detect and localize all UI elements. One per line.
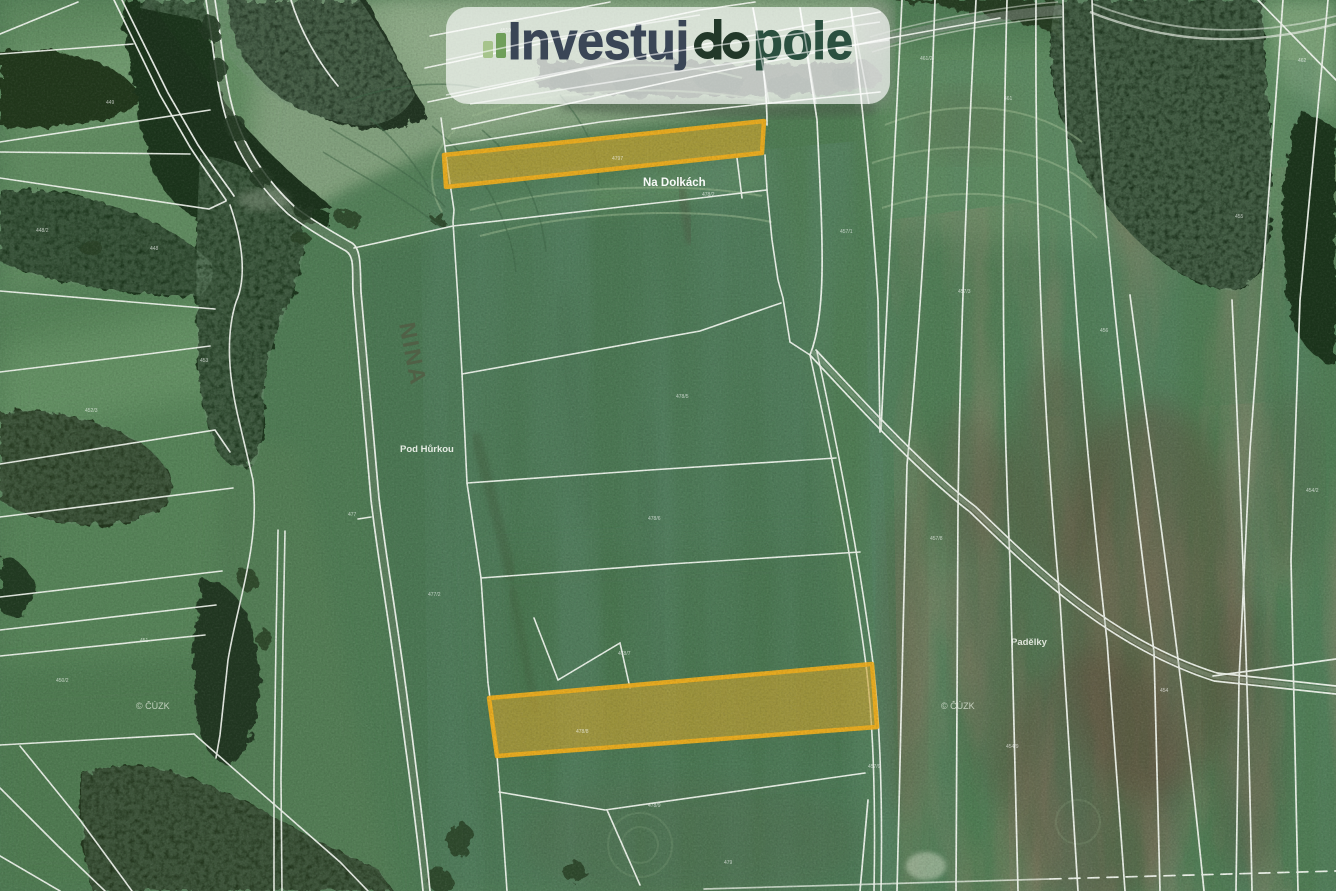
svg-text:477: 477 <box>348 512 357 518</box>
svg-text:478/6: 478/6 <box>648 516 661 522</box>
svg-text:478/7: 478/7 <box>618 651 631 657</box>
svg-text:478/9: 478/9 <box>648 803 661 809</box>
svg-text:452/3: 452/3 <box>85 408 98 414</box>
svg-text:457/3: 457/3 <box>958 289 971 295</box>
svg-text:456: 456 <box>1100 328 1109 334</box>
svg-text:477/2: 477/2 <box>428 592 441 598</box>
svg-text:478/5: 478/5 <box>676 394 689 400</box>
svg-text:461/2: 461/2 <box>920 56 933 62</box>
svg-text:454/2: 454/2 <box>1306 488 1319 494</box>
svg-text:457/8: 457/8 <box>930 536 943 542</box>
svg-text:478/2: 478/2 <box>702 192 715 198</box>
svg-text:457/9: 457/9 <box>868 764 881 770</box>
svg-text:© ČÚZK: © ČÚZK <box>136 701 170 711</box>
svg-text:© ČÚZK: © ČÚZK <box>941 701 975 711</box>
svg-text:4519: 4519 <box>500 28 511 34</box>
svg-text:Pod Hůrkou: Pod Hůrkou <box>400 444 454 455</box>
svg-text:461: 461 <box>1004 96 1013 102</box>
svg-text:450/2: 450/2 <box>56 678 69 684</box>
svg-text:Padělky: Padělky <box>1011 637 1048 648</box>
svg-text:455: 455 <box>1235 214 1244 220</box>
svg-text:451: 451 <box>140 638 149 644</box>
svg-text:454: 454 <box>1160 688 1169 694</box>
svg-text:448: 448 <box>150 246 159 252</box>
svg-text:4797: 4797 <box>612 156 623 162</box>
svg-text:457/1: 457/1 <box>840 229 853 235</box>
svg-text:462: 462 <box>1298 58 1307 64</box>
svg-text:479: 479 <box>724 860 733 866</box>
svg-text:449: 449 <box>106 100 115 106</box>
svg-text:448/2: 448/2 <box>36 228 49 234</box>
svg-text:pole: pole <box>753 12 853 71</box>
svg-text:Na Dolkách: Na Dolkách <box>643 177 706 189</box>
svg-text:453: 453 <box>200 358 209 364</box>
svg-text:454/9: 454/9 <box>1006 744 1019 750</box>
svg-text:478/8: 478/8 <box>576 729 589 735</box>
